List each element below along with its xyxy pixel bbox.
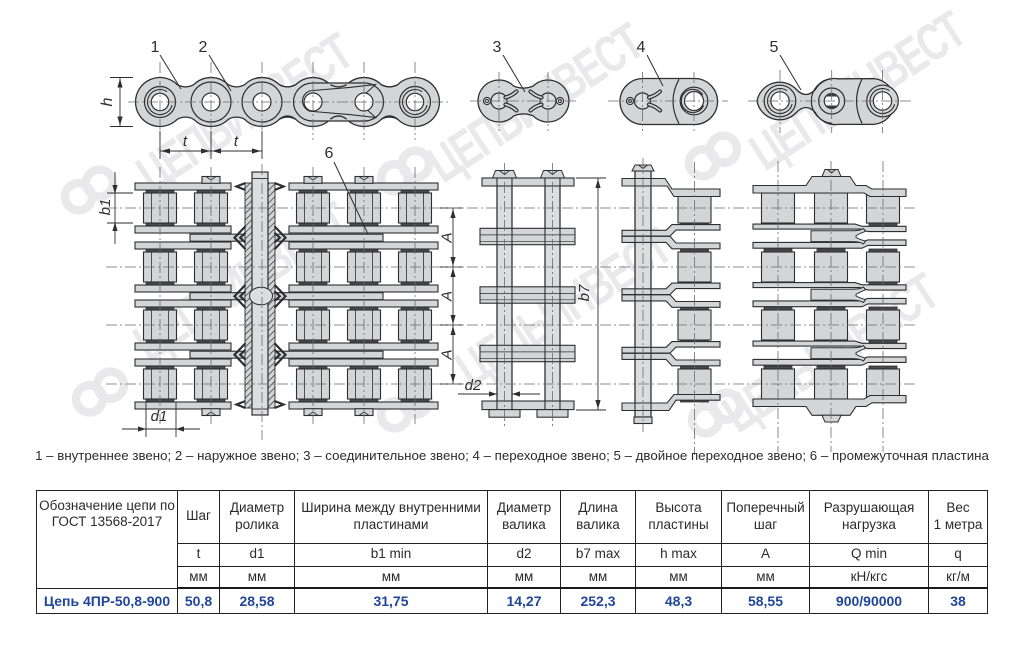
svg-text:3: 3: [493, 39, 502, 56]
svg-text:A: A: [439, 291, 456, 302]
svg-text:2: 2: [199, 39, 208, 56]
svg-text:b1: b1: [97, 199, 114, 216]
svg-text:d2: d2: [465, 377, 482, 394]
svg-text:d1: d1: [151, 408, 168, 425]
svg-text:5: 5: [770, 39, 779, 56]
svg-text:4: 4: [637, 39, 646, 56]
svg-text:1: 1: [151, 39, 160, 56]
svg-text:6: 6: [325, 145, 334, 162]
svg-text:h: h: [99, 97, 116, 106]
svg-text:b7: b7: [576, 284, 593, 301]
svg-text:A: A: [439, 349, 456, 360]
svg-text:A: A: [439, 232, 456, 243]
